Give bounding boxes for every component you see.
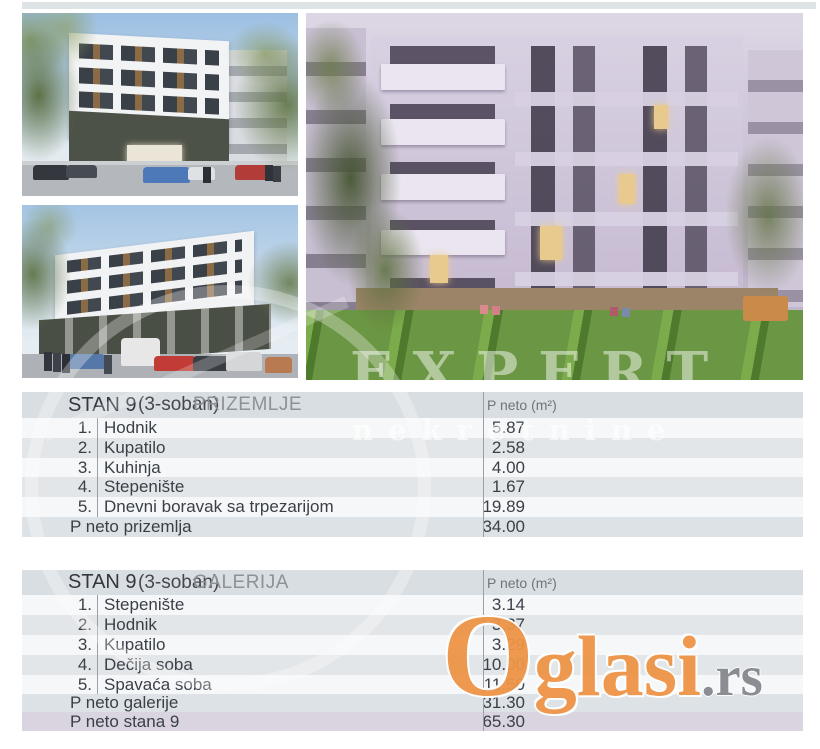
room-name: Stepenište (104, 477, 184, 497)
listing-page: { "watermarks": { "brand": "EXPERT", "br… (0, 0, 820, 749)
room-name: Spavaća soba (104, 675, 212, 694)
total-label: P neto stana 9 (70, 712, 179, 731)
top-accent-bar (22, 2, 816, 9)
row-number: 3. (60, 458, 92, 477)
room-name: Dečija soba (104, 655, 193, 675)
room-name: Stepenište (104, 595, 184, 615)
room-name: Hodnik (104, 615, 157, 635)
table-row: 5. Dnevni boravak sa trpezarijom 19.89 (22, 497, 803, 517)
table1-number-divider (97, 418, 98, 517)
trees (22, 13, 298, 196)
room-area: 1.67 (422, 477, 525, 497)
room-name: Dnevni boravak sa trpezarijom (104, 497, 334, 517)
room-name: Hodnik (104, 418, 157, 438)
agency-watermark: EXPERT (350, 340, 728, 380)
row-number: 3. (60, 635, 92, 655)
table1-title-level: PRIZEMLJE (193, 392, 302, 418)
portal-watermark-tld: .rs (701, 648, 763, 705)
table2-header: STAN 9 (3-soban) GALERIJA P neto (m²) (22, 570, 803, 595)
table2-title-stan: STAN 9 (68, 570, 137, 595)
room-area: 19.89 (422, 497, 525, 517)
photo-building-street-view-1 (22, 13, 298, 196)
row-number: 5. (60, 497, 92, 517)
row-number: 4. (60, 477, 92, 497)
table1-total-row: P neto prizemlja 34.00 (22, 517, 803, 537)
row-number: 1. (60, 595, 92, 615)
table2-title-level: GALERIJA (193, 570, 289, 595)
table-row: 4. Stepenište 1.67 (22, 477, 803, 497)
portal-watermark-rest: glasi (534, 623, 701, 709)
photo-building-street-view-2 (22, 205, 298, 378)
total-area: 34.00 (422, 517, 525, 537)
table2-number-divider (97, 595, 98, 694)
trees (306, 13, 803, 380)
portal-watermark-initial: O (442, 597, 534, 715)
total-label: P neto galerije (70, 694, 178, 712)
room-name: Kupatilo (104, 635, 165, 655)
table-row: 3. Kuhinja 4.00 (22, 458, 803, 477)
agency-subtitle-watermark: nekretnine (352, 413, 680, 447)
row-number: 5. (60, 675, 92, 694)
row-number: 4. (60, 655, 92, 675)
room-area: 4.00 (422, 458, 525, 477)
room-name: Kupatilo (104, 438, 165, 458)
trees (22, 205, 298, 378)
row-number: 2. (60, 615, 92, 635)
photo-building-courtyard-view: EXPERT (306, 13, 803, 380)
total-label: P neto prizemlja (70, 517, 192, 537)
row-number: 2. (60, 438, 92, 458)
room-name: Kuhinja (104, 458, 161, 477)
portal-watermark: Oglasi.rs (442, 597, 763, 715)
